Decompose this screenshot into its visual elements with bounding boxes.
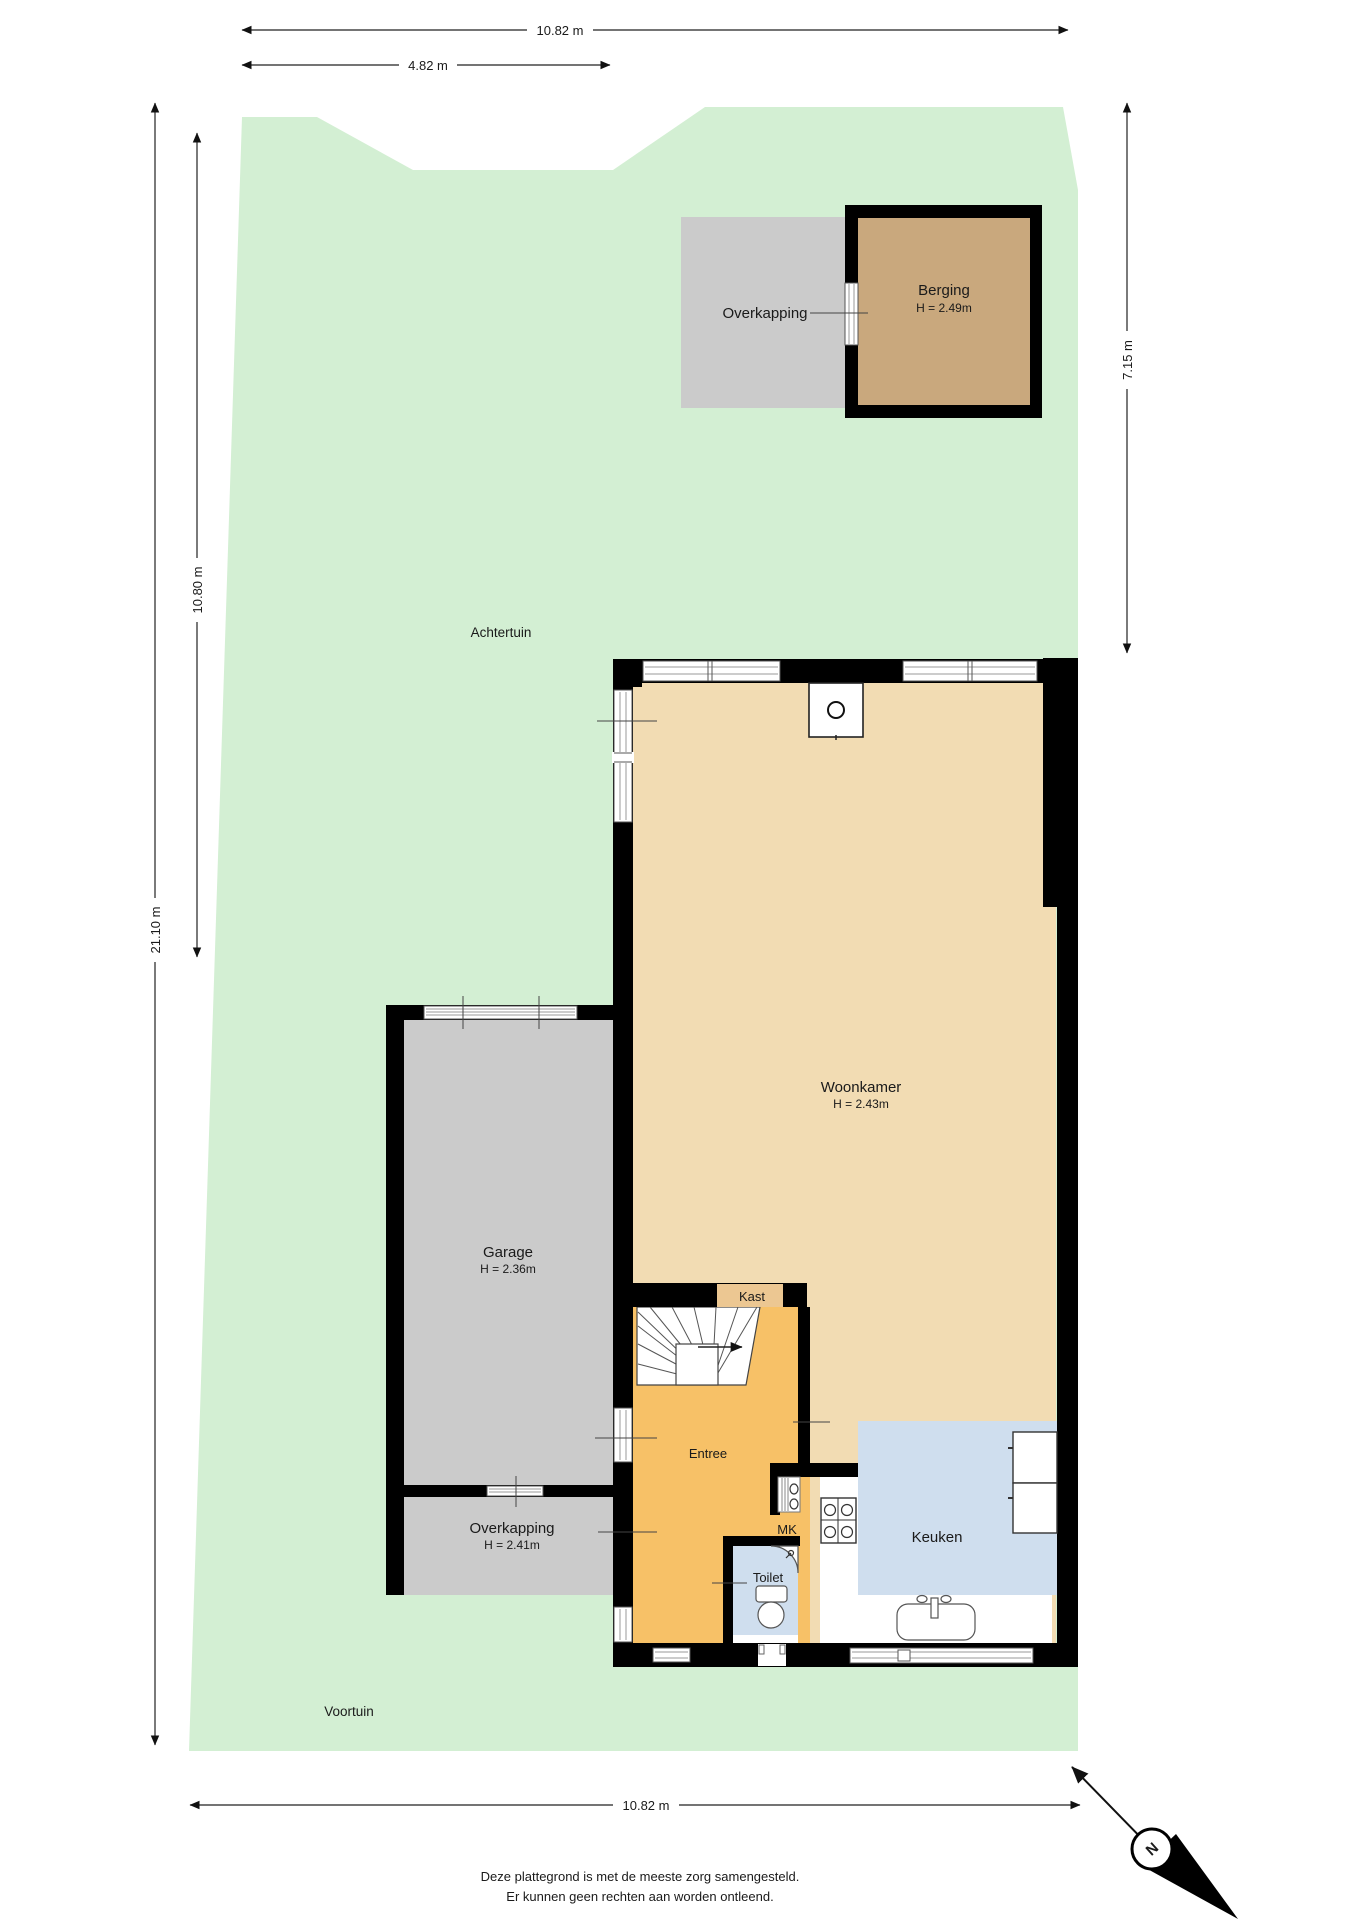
livingroom-label: Woonkamer — [821, 1079, 902, 1096]
entry-label: Entree — [689, 1446, 727, 1461]
frontyard-label: Voortuin — [324, 1704, 374, 1719]
window-north-left — [643, 661, 780, 681]
window-west-middle — [614, 1408, 632, 1462]
toilet-sill — [733, 1635, 798, 1643]
storage-shed-window — [845, 283, 858, 345]
garage-label: Garage — [483, 1244, 533, 1261]
gas-hob — [821, 1498, 856, 1543]
window-garage-south — [487, 1486, 543, 1496]
window-west-lower — [614, 1607, 632, 1642]
window-west-upper — [612, 690, 634, 822]
kitchen-appliances — [1008, 1432, 1057, 1533]
svg-text:21.10 m: 21.10 m — [148, 907, 163, 954]
meter-closet — [778, 1477, 800, 1512]
stair-landing — [676, 1344, 718, 1385]
window-south-left — [653, 1648, 690, 1662]
svg-text:4.82 m: 4.82 m — [408, 58, 448, 73]
backyard-label: Achtertuin — [471, 625, 532, 640]
carport-bottom-label: Overkapping — [469, 1520, 554, 1537]
svg-text:10.82 m: 10.82 m — [623, 1798, 670, 1813]
meter-closet-label: MK — [777, 1522, 797, 1537]
carport-bottom-height-label: H = 2.41m — [484, 1538, 540, 1552]
livingroom-height-label: H = 2.43m — [833, 1097, 889, 1111]
kitchen-label: Keuken — [912, 1529, 963, 1546]
floorplan-page: Overkapping Berging H = 2.49m Woonkamer … — [0, 0, 1358, 1920]
closet-label: Kast — [739, 1289, 765, 1304]
window-north-right — [903, 661, 1037, 681]
garage-height-label: H = 2.36m — [480, 1262, 536, 1276]
door-south-toilet — [758, 1644, 786, 1666]
window-south-kitchen — [850, 1648, 1033, 1663]
svg-text:7.15 m: 7.15 m — [1120, 340, 1135, 380]
toilet-label: Toilet — [753, 1570, 784, 1585]
staircase — [637, 1307, 760, 1385]
svg-text:10.82 m: 10.82 m — [537, 23, 584, 38]
storage-height-label: H = 2.49m — [916, 301, 972, 315]
chimney — [809, 683, 863, 740]
floorplan-canvas: Overkapping Berging H = 2.49m Woonkamer … — [0, 0, 1358, 1920]
disclaimer-line2: Er kunnen geen rechten aan worden ontlee… — [506, 1889, 773, 1904]
disclaimer-line1: Deze plattegrond is met de meeste zorg s… — [481, 1869, 800, 1884]
carport-top-label: Overkapping — [722, 305, 807, 322]
storage-label: Berging — [918, 282, 970, 299]
svg-text:10.80 m: 10.80 m — [190, 567, 205, 614]
garage-door — [424, 1006, 577, 1019]
